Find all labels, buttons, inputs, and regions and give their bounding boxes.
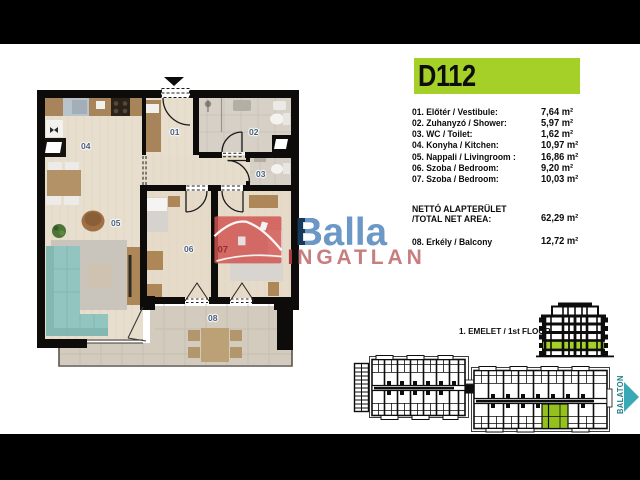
svg-text:07: 07 [218, 245, 229, 256]
